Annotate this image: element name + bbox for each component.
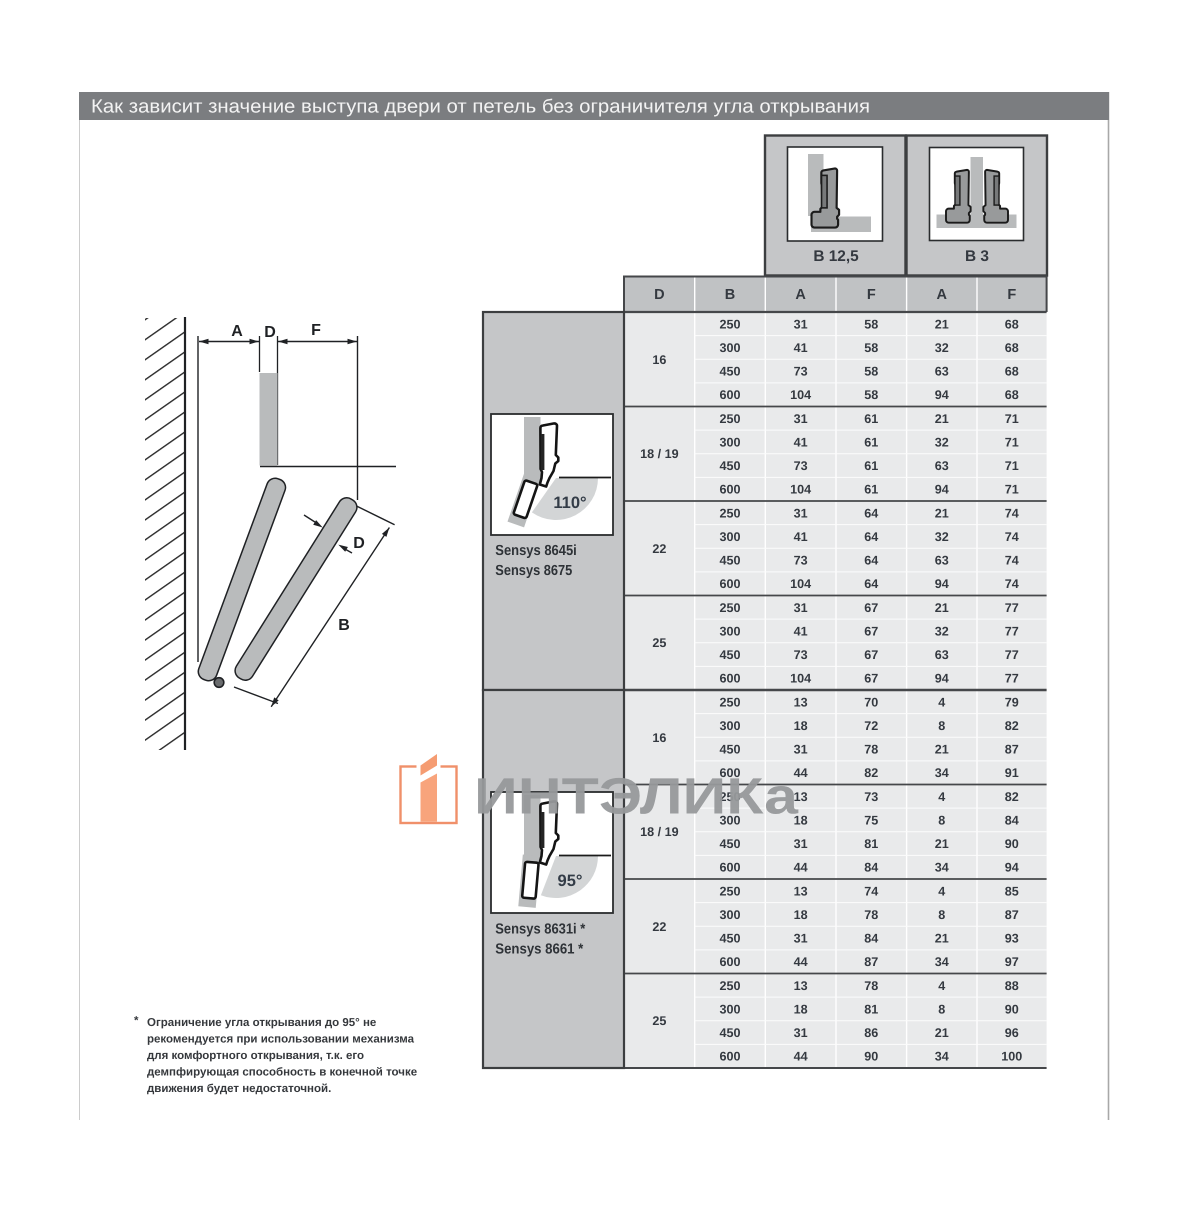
svg-text:21: 21: [935, 932, 949, 946]
svg-text:450: 450: [719, 837, 740, 851]
svg-text:16: 16: [652, 731, 666, 745]
svg-text:73: 73: [794, 554, 808, 568]
svg-text:74: 74: [1005, 506, 1019, 520]
svg-text:84: 84: [864, 861, 878, 875]
svg-text:600: 600: [719, 955, 740, 969]
svg-text:81: 81: [864, 837, 878, 851]
svg-text:21: 21: [935, 412, 949, 426]
svg-text:32: 32: [935, 341, 949, 355]
svg-text:21: 21: [935, 743, 949, 757]
svg-text:демпфирующая способность в кон: демпфирующая способность в конечной точк…: [147, 1067, 417, 1079]
svg-text:движения будет недостаточной.: движения будет недостаточной.: [147, 1083, 331, 1095]
svg-text:300: 300: [719, 1002, 740, 1016]
svg-text:31: 31: [794, 837, 808, 851]
svg-text:74: 74: [1005, 577, 1019, 591]
svg-text:31: 31: [794, 743, 808, 757]
svg-text:81: 81: [864, 1002, 878, 1016]
svg-text:450: 450: [719, 1026, 740, 1040]
svg-text:73: 73: [864, 790, 878, 804]
svg-text:18: 18: [794, 908, 808, 922]
svg-text:8: 8: [938, 719, 945, 733]
svg-text:25: 25: [652, 1014, 666, 1028]
svg-text:32: 32: [935, 530, 949, 544]
svg-text:58: 58: [864, 365, 878, 379]
svg-text:91: 91: [1005, 766, 1019, 780]
svg-text:104: 104: [790, 388, 811, 402]
svg-text:21: 21: [935, 506, 949, 520]
svg-text:18 / 19: 18 / 19: [640, 447, 679, 461]
svg-text:ИНТЭЛИКа: ИНТЭЛИКа: [474, 768, 799, 825]
svg-text:450: 450: [719, 365, 740, 379]
svg-text:600: 600: [719, 861, 740, 875]
svg-text:21: 21: [935, 601, 949, 615]
svg-text:450: 450: [719, 554, 740, 568]
svg-text:B 12,5: B 12,5: [813, 248, 859, 265]
svg-text:300: 300: [719, 530, 740, 544]
svg-text:F: F: [1007, 287, 1016, 303]
svg-text:95°: 95°: [558, 872, 583, 890]
svg-text:8: 8: [938, 813, 945, 827]
svg-text:94: 94: [935, 388, 949, 402]
svg-text:B: B: [338, 617, 350, 634]
svg-text:600: 600: [719, 1050, 740, 1064]
svg-text:104: 104: [790, 672, 811, 686]
svg-text:25: 25: [652, 636, 666, 650]
svg-text:100: 100: [1001, 1050, 1022, 1064]
svg-text:*: *: [134, 1015, 139, 1027]
svg-text:31: 31: [794, 317, 808, 331]
svg-text:13: 13: [794, 979, 808, 993]
svg-text:75: 75: [864, 813, 878, 827]
svg-text:87: 87: [1005, 908, 1019, 922]
svg-text:18: 18: [794, 719, 808, 733]
svg-text:104: 104: [790, 577, 811, 591]
svg-text:94: 94: [935, 672, 949, 686]
svg-text:67: 67: [864, 672, 878, 686]
svg-text:21: 21: [935, 317, 949, 331]
svg-text:31: 31: [794, 601, 808, 615]
svg-text:70: 70: [864, 695, 878, 709]
svg-text:82: 82: [1005, 719, 1019, 733]
svg-text:A: A: [795, 287, 806, 303]
svg-text:64: 64: [864, 577, 878, 591]
svg-text:21: 21: [935, 837, 949, 851]
svg-text:104: 104: [790, 483, 811, 497]
svg-text:74: 74: [1005, 530, 1019, 544]
svg-text:Sensys 8661 *: Sensys 8661 *: [495, 942, 583, 958]
svg-text:41: 41: [794, 624, 808, 638]
svg-text:32: 32: [935, 624, 949, 638]
svg-text:31: 31: [794, 506, 808, 520]
svg-text:71: 71: [1005, 412, 1019, 426]
svg-text:87: 87: [864, 955, 878, 969]
svg-text:67: 67: [864, 624, 878, 638]
svg-text:B: B: [725, 287, 735, 303]
svg-text:13: 13: [794, 695, 808, 709]
svg-text:61: 61: [864, 459, 878, 473]
svg-text:для комфортного открывания, т.: для комфортного открывания, т.к. его: [147, 1050, 364, 1062]
svg-text:86: 86: [864, 1026, 878, 1040]
svg-text:B 3: B 3: [965, 248, 989, 265]
svg-text:4: 4: [938, 695, 945, 709]
svg-text:Ограничение угла открывания до: Ограничение угла открывания до 95° не: [147, 1017, 376, 1029]
svg-text:рекомендуется при использовани: рекомендуется при использовании механизм…: [147, 1034, 415, 1046]
svg-text:450: 450: [719, 932, 740, 946]
svg-text:77: 77: [1005, 648, 1019, 662]
svg-text:300: 300: [719, 624, 740, 638]
svg-text:78: 78: [864, 743, 878, 757]
svg-text:31: 31: [794, 412, 808, 426]
svg-text:A: A: [231, 323, 243, 340]
svg-text:450: 450: [719, 743, 740, 757]
svg-text:34: 34: [935, 766, 949, 780]
svg-text:D: D: [264, 324, 276, 341]
svg-text:31: 31: [794, 932, 808, 946]
svg-text:41: 41: [794, 341, 808, 355]
svg-text:22: 22: [652, 920, 666, 934]
svg-text:78: 78: [864, 908, 878, 922]
svg-text:250: 250: [719, 695, 740, 709]
svg-text:74: 74: [864, 884, 878, 898]
svg-text:63: 63: [935, 648, 949, 662]
svg-text:74: 74: [1005, 554, 1019, 568]
svg-text:90: 90: [864, 1050, 878, 1064]
svg-text:61: 61: [864, 483, 878, 497]
svg-text:A: A: [937, 287, 948, 303]
svg-text:58: 58: [864, 388, 878, 402]
svg-text:63: 63: [935, 365, 949, 379]
svg-text:250: 250: [719, 412, 740, 426]
svg-text:16: 16: [652, 353, 666, 367]
svg-text:94: 94: [1005, 861, 1019, 875]
svg-text:63: 63: [935, 554, 949, 568]
svg-text:67: 67: [864, 648, 878, 662]
svg-text:61: 61: [864, 435, 878, 449]
svg-text:94: 94: [935, 483, 949, 497]
svg-text:8: 8: [938, 1002, 945, 1016]
svg-text:450: 450: [719, 648, 740, 662]
svg-text:D: D: [654, 287, 664, 303]
svg-text:84: 84: [864, 932, 878, 946]
svg-text:68: 68: [1005, 341, 1019, 355]
svg-text:87: 87: [1005, 743, 1019, 757]
svg-text:41: 41: [794, 435, 808, 449]
svg-text:600: 600: [719, 672, 740, 686]
svg-text:82: 82: [864, 766, 878, 780]
svg-text:72: 72: [864, 719, 878, 733]
svg-text:63: 63: [935, 459, 949, 473]
svg-text:96: 96: [1005, 1026, 1019, 1040]
svg-text:18 / 19: 18 / 19: [640, 825, 679, 839]
svg-text:18: 18: [794, 1002, 808, 1016]
svg-text:300: 300: [719, 908, 740, 922]
svg-text:64: 64: [864, 530, 878, 544]
svg-text:250: 250: [719, 601, 740, 615]
svg-text:34: 34: [935, 955, 949, 969]
svg-text:77: 77: [1005, 672, 1019, 686]
svg-text:300: 300: [719, 435, 740, 449]
svg-text:88: 88: [1005, 979, 1019, 993]
svg-text:250: 250: [719, 979, 740, 993]
svg-text:85: 85: [1005, 884, 1019, 898]
svg-text:90: 90: [1005, 1002, 1019, 1016]
svg-text:97: 97: [1005, 955, 1019, 969]
svg-text:32: 32: [935, 435, 949, 449]
svg-text:44: 44: [794, 1050, 808, 1064]
svg-text:F: F: [867, 287, 876, 303]
svg-text:44: 44: [794, 861, 808, 875]
svg-text:450: 450: [719, 459, 740, 473]
svg-text:Sensys 8645i: Sensys 8645i: [495, 543, 577, 559]
svg-text:600: 600: [719, 483, 740, 497]
svg-text:D: D: [353, 535, 365, 552]
svg-text:250: 250: [719, 884, 740, 898]
svg-text:600: 600: [719, 388, 740, 402]
svg-text:71: 71: [1005, 435, 1019, 449]
svg-text:F: F: [311, 322, 321, 339]
svg-text:93: 93: [1005, 932, 1019, 946]
svg-text:110°: 110°: [553, 494, 586, 512]
svg-text:77: 77: [1005, 624, 1019, 638]
svg-text:22: 22: [652, 542, 666, 556]
svg-text:68: 68: [1005, 365, 1019, 379]
svg-text:73: 73: [794, 459, 808, 473]
svg-text:300: 300: [719, 719, 740, 733]
svg-text:21: 21: [935, 1026, 949, 1040]
svg-text:8: 8: [938, 908, 945, 922]
svg-text:31: 31: [794, 1026, 808, 1040]
svg-text:82: 82: [1005, 790, 1019, 804]
svg-text:34: 34: [935, 861, 949, 875]
svg-text:71: 71: [1005, 459, 1019, 473]
svg-text:58: 58: [864, 317, 878, 331]
svg-text:4: 4: [938, 884, 945, 898]
svg-text:Sensys 8675: Sensys 8675: [495, 563, 572, 579]
svg-text:41: 41: [794, 530, 808, 544]
svg-text:34: 34: [935, 1050, 949, 1064]
svg-text:78: 78: [864, 979, 878, 993]
svg-text:68: 68: [1005, 388, 1019, 402]
svg-text:84: 84: [1005, 813, 1019, 827]
svg-text:94: 94: [935, 577, 949, 591]
svg-text:4: 4: [938, 790, 945, 804]
svg-text:90: 90: [1005, 837, 1019, 851]
svg-text:250: 250: [719, 506, 740, 520]
svg-text:Как зависит значение выступа д: Как зависит значение выступа двери от пе…: [91, 97, 870, 118]
svg-text:73: 73: [794, 648, 808, 662]
svg-text:44: 44: [794, 955, 808, 969]
svg-text:71: 71: [1005, 483, 1019, 497]
svg-text:67: 67: [864, 601, 878, 615]
svg-text:68: 68: [1005, 317, 1019, 331]
svg-text:77: 77: [1005, 601, 1019, 615]
svg-text:250: 250: [719, 317, 740, 331]
svg-text:79: 79: [1005, 695, 1019, 709]
svg-text:Sensys 8631i *: Sensys 8631i *: [495, 922, 585, 938]
svg-text:13: 13: [794, 884, 808, 898]
svg-text:4: 4: [938, 979, 945, 993]
svg-text:58: 58: [864, 341, 878, 355]
svg-text:600: 600: [719, 577, 740, 591]
svg-text:64: 64: [864, 506, 878, 520]
svg-text:300: 300: [719, 341, 740, 355]
svg-text:61: 61: [864, 412, 878, 426]
svg-text:73: 73: [794, 365, 808, 379]
svg-text:64: 64: [864, 554, 878, 568]
